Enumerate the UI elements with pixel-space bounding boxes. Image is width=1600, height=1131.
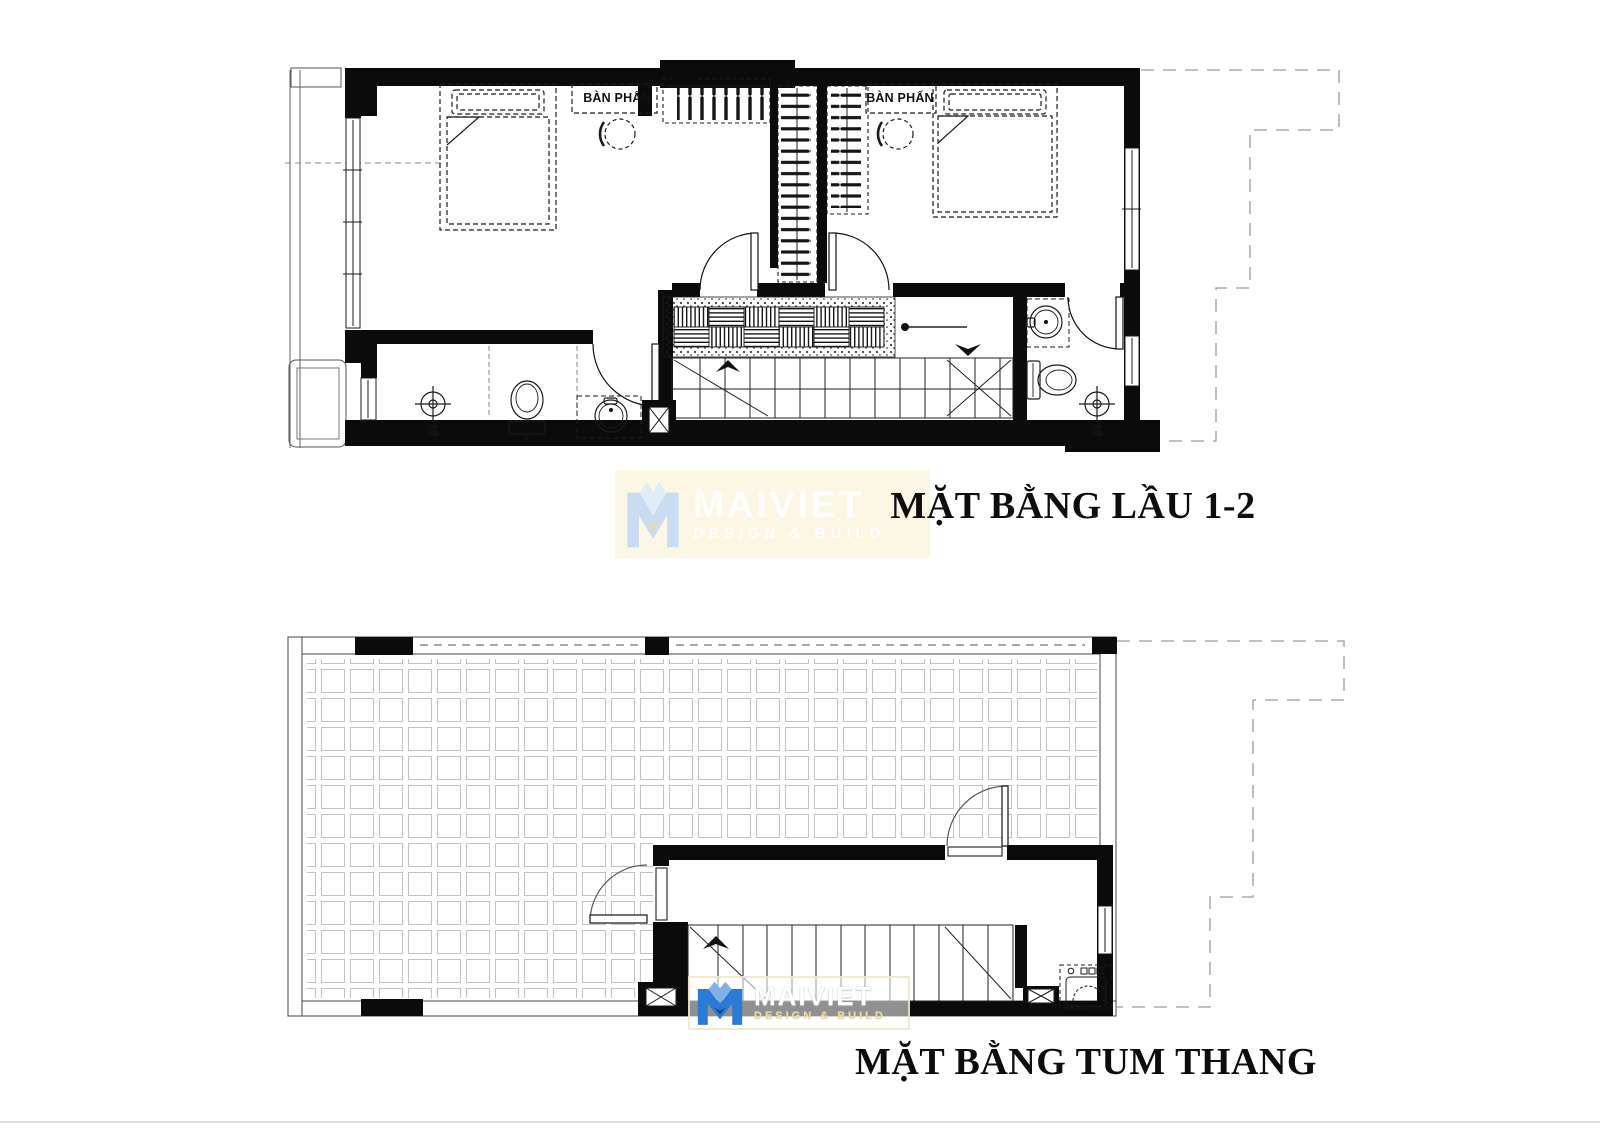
door-left-bedroom: [700, 233, 758, 290]
wardrobe-left: [778, 86, 817, 282]
window-left-bedroom: [343, 118, 362, 328]
plan-title-lower: MẶT BẰNG TUM THANG: [846, 1040, 1326, 1084]
watermark-text-lower: MAIVIET DESIGN & BUILD: [754, 983, 886, 1023]
sheet-edge-line: [0, 1121, 1600, 1123]
watermark-text-upper: MAIVIET DESIGN & BUILD: [693, 485, 886, 543]
maiviet-logo-icon: [623, 476, 683, 552]
shaft-lower-right: [1028, 989, 1054, 1003]
watermark-tagline: DESIGN & BUILD: [754, 1010, 886, 1023]
watermark-tagline: DESIGN & BUILD: [693, 525, 886, 543]
bathroom-right: [1027, 299, 1115, 436]
planter-box: [663, 297, 895, 357]
door-left-bathroom: [593, 344, 659, 406]
window-right-bathroom: [1125, 336, 1139, 386]
window-left-bathroom: [361, 378, 376, 420]
upper-floor-plan: [285, 60, 1339, 452]
bed-left: [440, 84, 556, 230]
window-right-bedroom: [1122, 148, 1141, 270]
door-right-bedroom: [829, 233, 889, 290]
watermark-brand: MAIVIET: [693, 485, 886, 525]
boundary-line-lower: [1117, 641, 1344, 1007]
stair-direction-arrow-down: [955, 344, 981, 356]
stair-direction-arrow-up: [716, 360, 740, 372]
vanity-label-right: BÀN PHẤN: [848, 91, 952, 105]
maiviet-logo-icon: [694, 978, 746, 1028]
shaft-left: [642, 400, 676, 440]
lower-floor-plan: [288, 637, 1344, 1016]
terrace-tiles: [307, 659, 1097, 998]
wardrobe-right: [827, 86, 868, 214]
boundary-line-upper: [1141, 70, 1339, 441]
watermark-brand: MAIVIET: [754, 983, 886, 1010]
sink-right: [1027, 299, 1069, 347]
handrail: [901, 323, 967, 331]
door-right-bathroom: [1068, 297, 1123, 349]
vanity-label-left: BÀN PHẤN: [565, 91, 669, 105]
plan-title-upper: MẶT BẰNG LẦU 1-2: [858, 484, 1288, 528]
watermark-lower: MAIVIET DESIGN & BUILD: [688, 976, 910, 1030]
blueprint-canvas: [0, 0, 1600, 1131]
window-enclosure-east: [1098, 906, 1112, 954]
toilet-right: [1027, 361, 1076, 399]
shaft-lower-left: [646, 988, 676, 1006]
